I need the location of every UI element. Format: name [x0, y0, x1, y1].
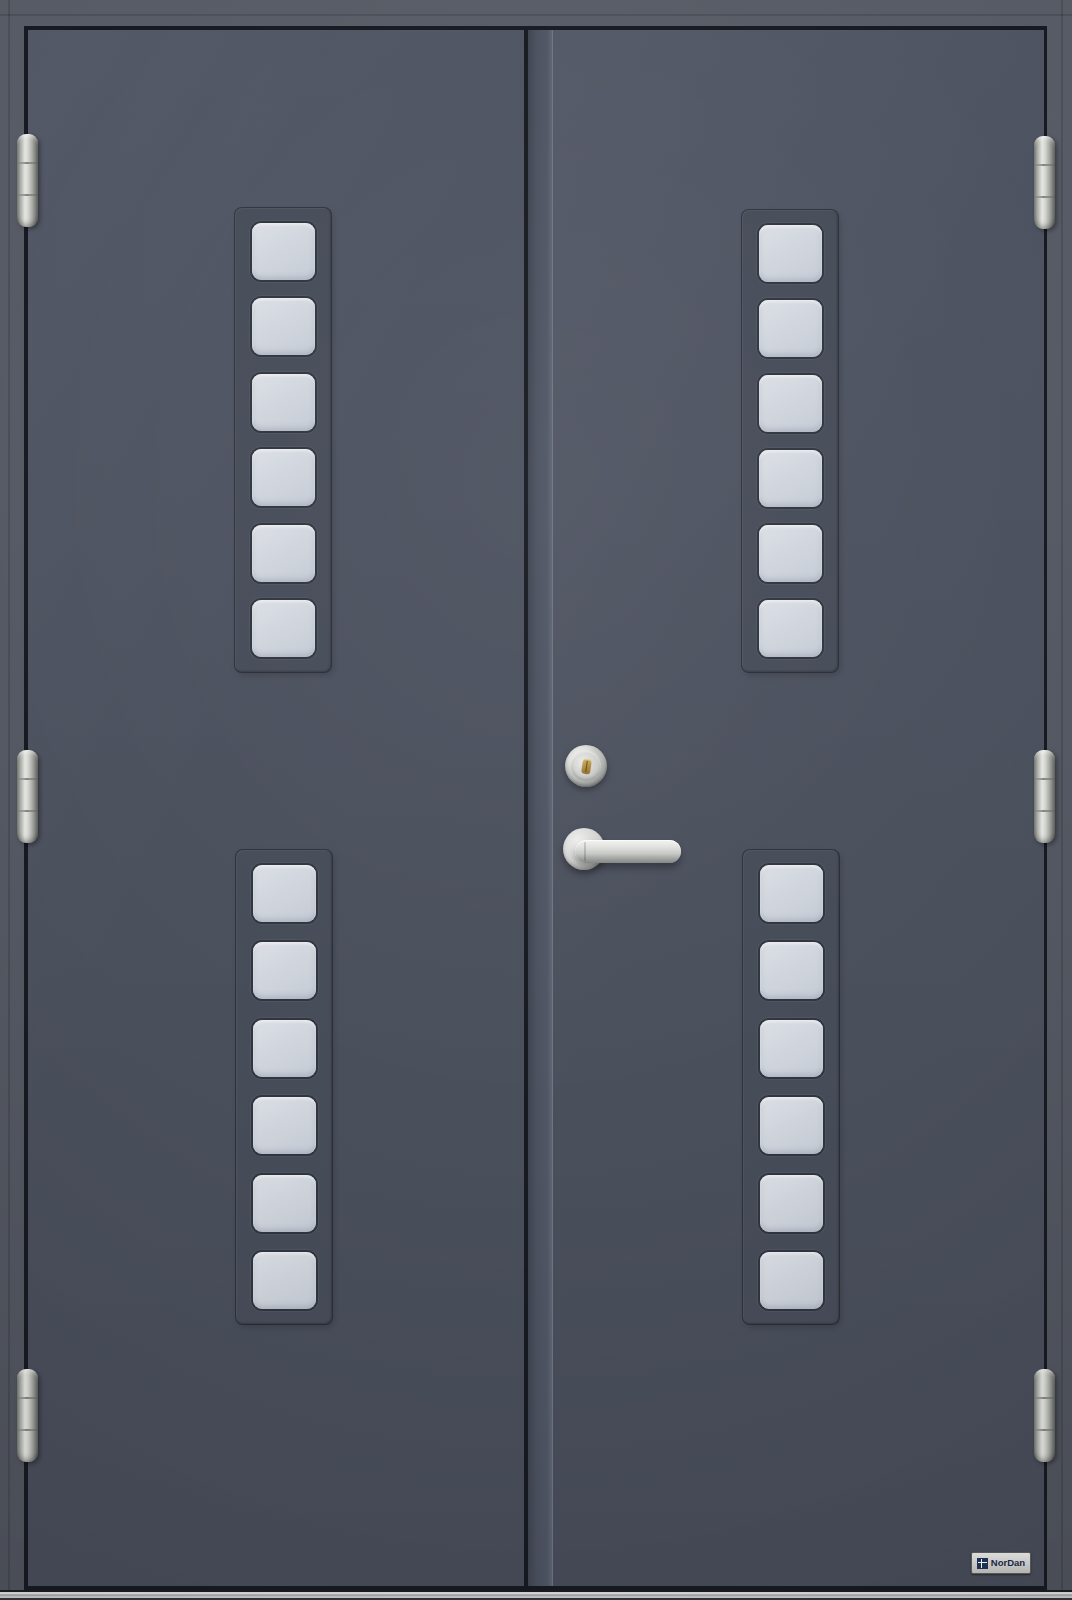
glass-pane: [760, 865, 823, 922]
glass-pane: [253, 1175, 316, 1232]
glass-pane: [253, 1097, 316, 1154]
lock-cylinder-face: [571, 751, 601, 781]
glass-pane: [760, 1097, 823, 1154]
glazing-unit-top-right: [742, 210, 838, 672]
glass-pane: [759, 375, 822, 432]
door-handle-lever: [575, 840, 681, 863]
hinge-left-middle: [17, 750, 38, 843]
hinge-right-bottom: [1034, 1369, 1055, 1462]
meeting-stile-astragal: [528, 30, 553, 1586]
glazing-unit-top-left: [235, 208, 331, 672]
glass-pane: [759, 300, 822, 357]
frame-profile-line-left: [8, 0, 10, 1600]
glazing-unit-bottom-right: [743, 850, 839, 1324]
glass-pane: [252, 600, 315, 657]
nordan-logo-text: NorDan: [991, 1558, 1025, 1568]
lock-cylinder: [565, 745, 607, 787]
glass-pane: [760, 942, 823, 999]
nordan-window-icon: [977, 1558, 988, 1569]
glass-pane: [252, 223, 315, 280]
glass-pane: [759, 225, 822, 282]
glass-pane: [760, 1252, 823, 1309]
brass-keyway-icon: [581, 758, 592, 774]
glass-pane: [760, 1175, 823, 1232]
glass-pane: [759, 450, 822, 507]
hinge-right-middle: [1034, 750, 1055, 843]
glass-pane: [253, 1020, 316, 1077]
hinge-left-top: [17, 134, 38, 227]
glass-pane: [760, 1020, 823, 1077]
door-product-photo: NorDan: [0, 0, 1072, 1600]
hinge-right-top: [1034, 136, 1055, 229]
glass-pane: [252, 374, 315, 431]
glass-pane: [253, 942, 316, 999]
frame-profile-line-top: [0, 14, 1072, 16]
hinge-left-bottom: [17, 1369, 38, 1462]
glass-pane: [759, 525, 822, 582]
glass-pane: [252, 525, 315, 582]
glass-pane: [253, 1252, 316, 1309]
nordan-logo-badge: NorDan: [971, 1552, 1031, 1574]
glass-pane: [252, 298, 315, 355]
frame-profile-line-right: [1061, 0, 1063, 1600]
glass-pane: [759, 600, 822, 657]
glass-pane: [253, 865, 316, 922]
glass-pane: [252, 449, 315, 506]
door-threshold: [0, 1590, 1072, 1600]
glazing-unit-bottom-left: [236, 850, 332, 1324]
